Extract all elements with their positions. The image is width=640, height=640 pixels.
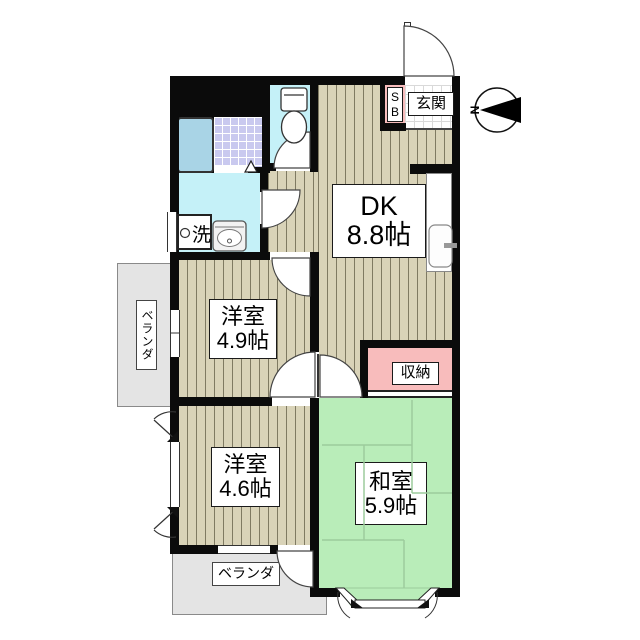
y49-dk-door-swing-arc-right [320,355,362,397]
north-arrow-icon: N [468,88,521,132]
entrance-door-swing-arc [404,26,454,76]
bath-door-marker-icon [245,161,257,172]
bay-window [336,588,439,618]
veranda-door-swing-arc [277,551,313,587]
y49-dk-door-swing-arc-left [270,352,315,397]
tatami-lines [322,400,452,588]
plan-symbols: 洗 N [0,0,640,640]
north-label: N [468,106,482,115]
laundry-text: 洗 [192,224,211,246]
bay-window-sash [355,600,425,608]
toilet-fixture [281,88,307,143]
floor-plan: DK 8.8帖 洋室 4.9帖 洋室 4.6帖 和室 5.9帖 収納 玄関 S … [0,0,640,640]
youshitsu49-door-swing-arc [272,258,310,296]
washing-machine-icon: 洗 [181,224,212,246]
washroom-door-swing-arc [262,190,300,228]
wash-basin [213,221,246,251]
kitchen-sink [429,225,457,267]
casement-windows-west [154,412,178,538]
